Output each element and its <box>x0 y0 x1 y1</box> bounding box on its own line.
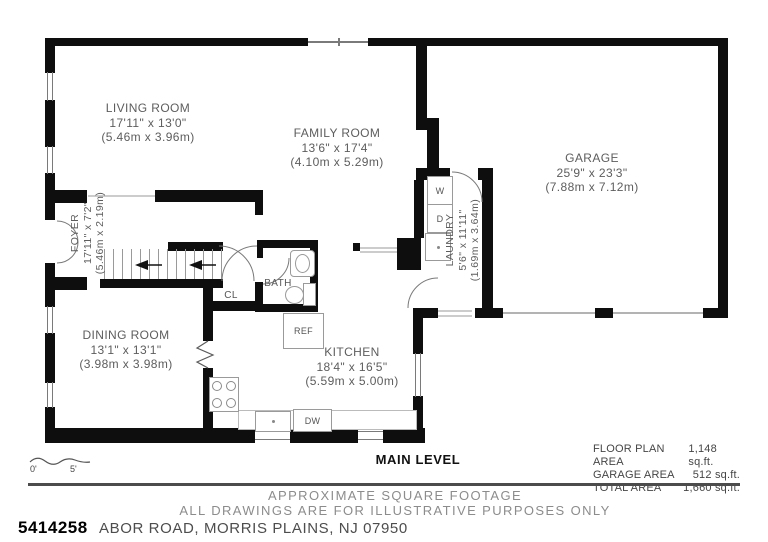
area-label: GARAGE AREA <box>593 469 675 482</box>
room-label-living: LIVING ROOM 17'11" x 13'0" (5.46m x 3.96… <box>68 101 228 145</box>
door-swing-arc <box>219 246 254 281</box>
room-name: FAMILY ROOM <box>257 126 417 141</box>
room-dims-metric: (5.46m x 3.96m) <box>68 130 228 145</box>
disclaimer-line-2: ALL DRAWINGS ARE FOR ILLUSTRATIVE PURPOS… <box>95 503 695 518</box>
room-label-kitchen: KITCHEN 18'4" x 16'5" (5.59m x 5.00m) <box>272 345 432 389</box>
room-label-laundry: LAUNDRY 5'6" x 11'11" (1.69m x 3.64m) <box>442 185 484 295</box>
room-dims-metric: (4.10m x 5.29m) <box>257 155 417 170</box>
room-dims-imperial: 13'1" x 13'1" <box>46 343 206 358</box>
scale-start-label: 0' <box>30 464 37 474</box>
door-swing-arc <box>408 278 438 308</box>
area-value: 512 sq.ft. <box>693 469 740 482</box>
area-row: FLOOR PLAN AREA 1,148 sq.ft. <box>593 443 740 469</box>
room-dims-imperial: 5'6" x 11'11" <box>457 209 470 270</box>
footer-divider <box>28 483 740 486</box>
closet-label: CL <box>216 290 246 301</box>
stair-arrow-head <box>135 260 148 270</box>
room-dims-imperial: 17'11" x 13'0" <box>68 116 228 131</box>
door-swing-arc <box>222 246 257 281</box>
area-value: 1,148 sq.ft. <box>688 443 740 469</box>
room-name: KITCHEN <box>272 345 432 360</box>
area-row: GARAGE AREA 512 sq.ft. <box>593 469 740 482</box>
room-dims-imperial: 13'6" x 17'4" <box>257 141 417 156</box>
room-name: LIVING ROOM <box>68 101 228 116</box>
scale-end-label: 5' <box>70 464 77 474</box>
room-name: FOYER <box>69 214 82 252</box>
property-address: ABOR ROAD, MORRIS PLAINS, NJ 07950 <box>99 520 408 537</box>
room-label-dining: DINING ROOM 13'1" x 13'1" (3.98m x 3.98m… <box>46 328 206 372</box>
room-dims-imperial: 18'4" x 16'5" <box>272 360 432 375</box>
room-dims-metric: (5.59m x 5.00m) <box>272 374 432 389</box>
bath-label: BATH <box>257 278 299 289</box>
area-label: FLOOR PLAN AREA <box>593 443 688 469</box>
room-name: GARAGE <box>512 151 672 166</box>
room-dims-metric: (7.88m x 7.12m) <box>512 180 672 195</box>
room-label-family: FAMILY ROOM 13'6" x 17'4" (4.10m x 5.29m… <box>257 126 417 170</box>
room-dims-metric: (3.98m x 3.98m) <box>46 357 206 372</box>
room-name: LAUNDRY <box>444 214 457 267</box>
floor-plan-page: W D REF DW <box>0 0 768 542</box>
room-dims-metric: (1.69m x 3.64m) <box>469 199 482 281</box>
scale-bar-line <box>30 458 90 464</box>
room-dims-imperial: 25'9" x 23'3" <box>512 166 672 181</box>
stair-arrow-head <box>189 260 202 270</box>
level-title: MAIN LEVEL <box>288 452 548 467</box>
disclaimer-line-1: APPROXIMATE SQUARE FOOTAGE <box>95 488 695 503</box>
room-dims-imperial: 17'11" x 7'2" <box>82 202 95 264</box>
room-dims-metric: (5.46m x 2.19m) <box>94 192 107 274</box>
listing-number: 5414258 <box>18 518 88 538</box>
room-label-foyer: FOYER 17'11" x 7'2" (5.46m x 2.19m) <box>66 191 110 275</box>
room-label-garage: GARAGE 25'9" x 23'3" (7.88m x 7.12m) <box>512 151 672 195</box>
room-name: DINING ROOM <box>46 328 206 343</box>
